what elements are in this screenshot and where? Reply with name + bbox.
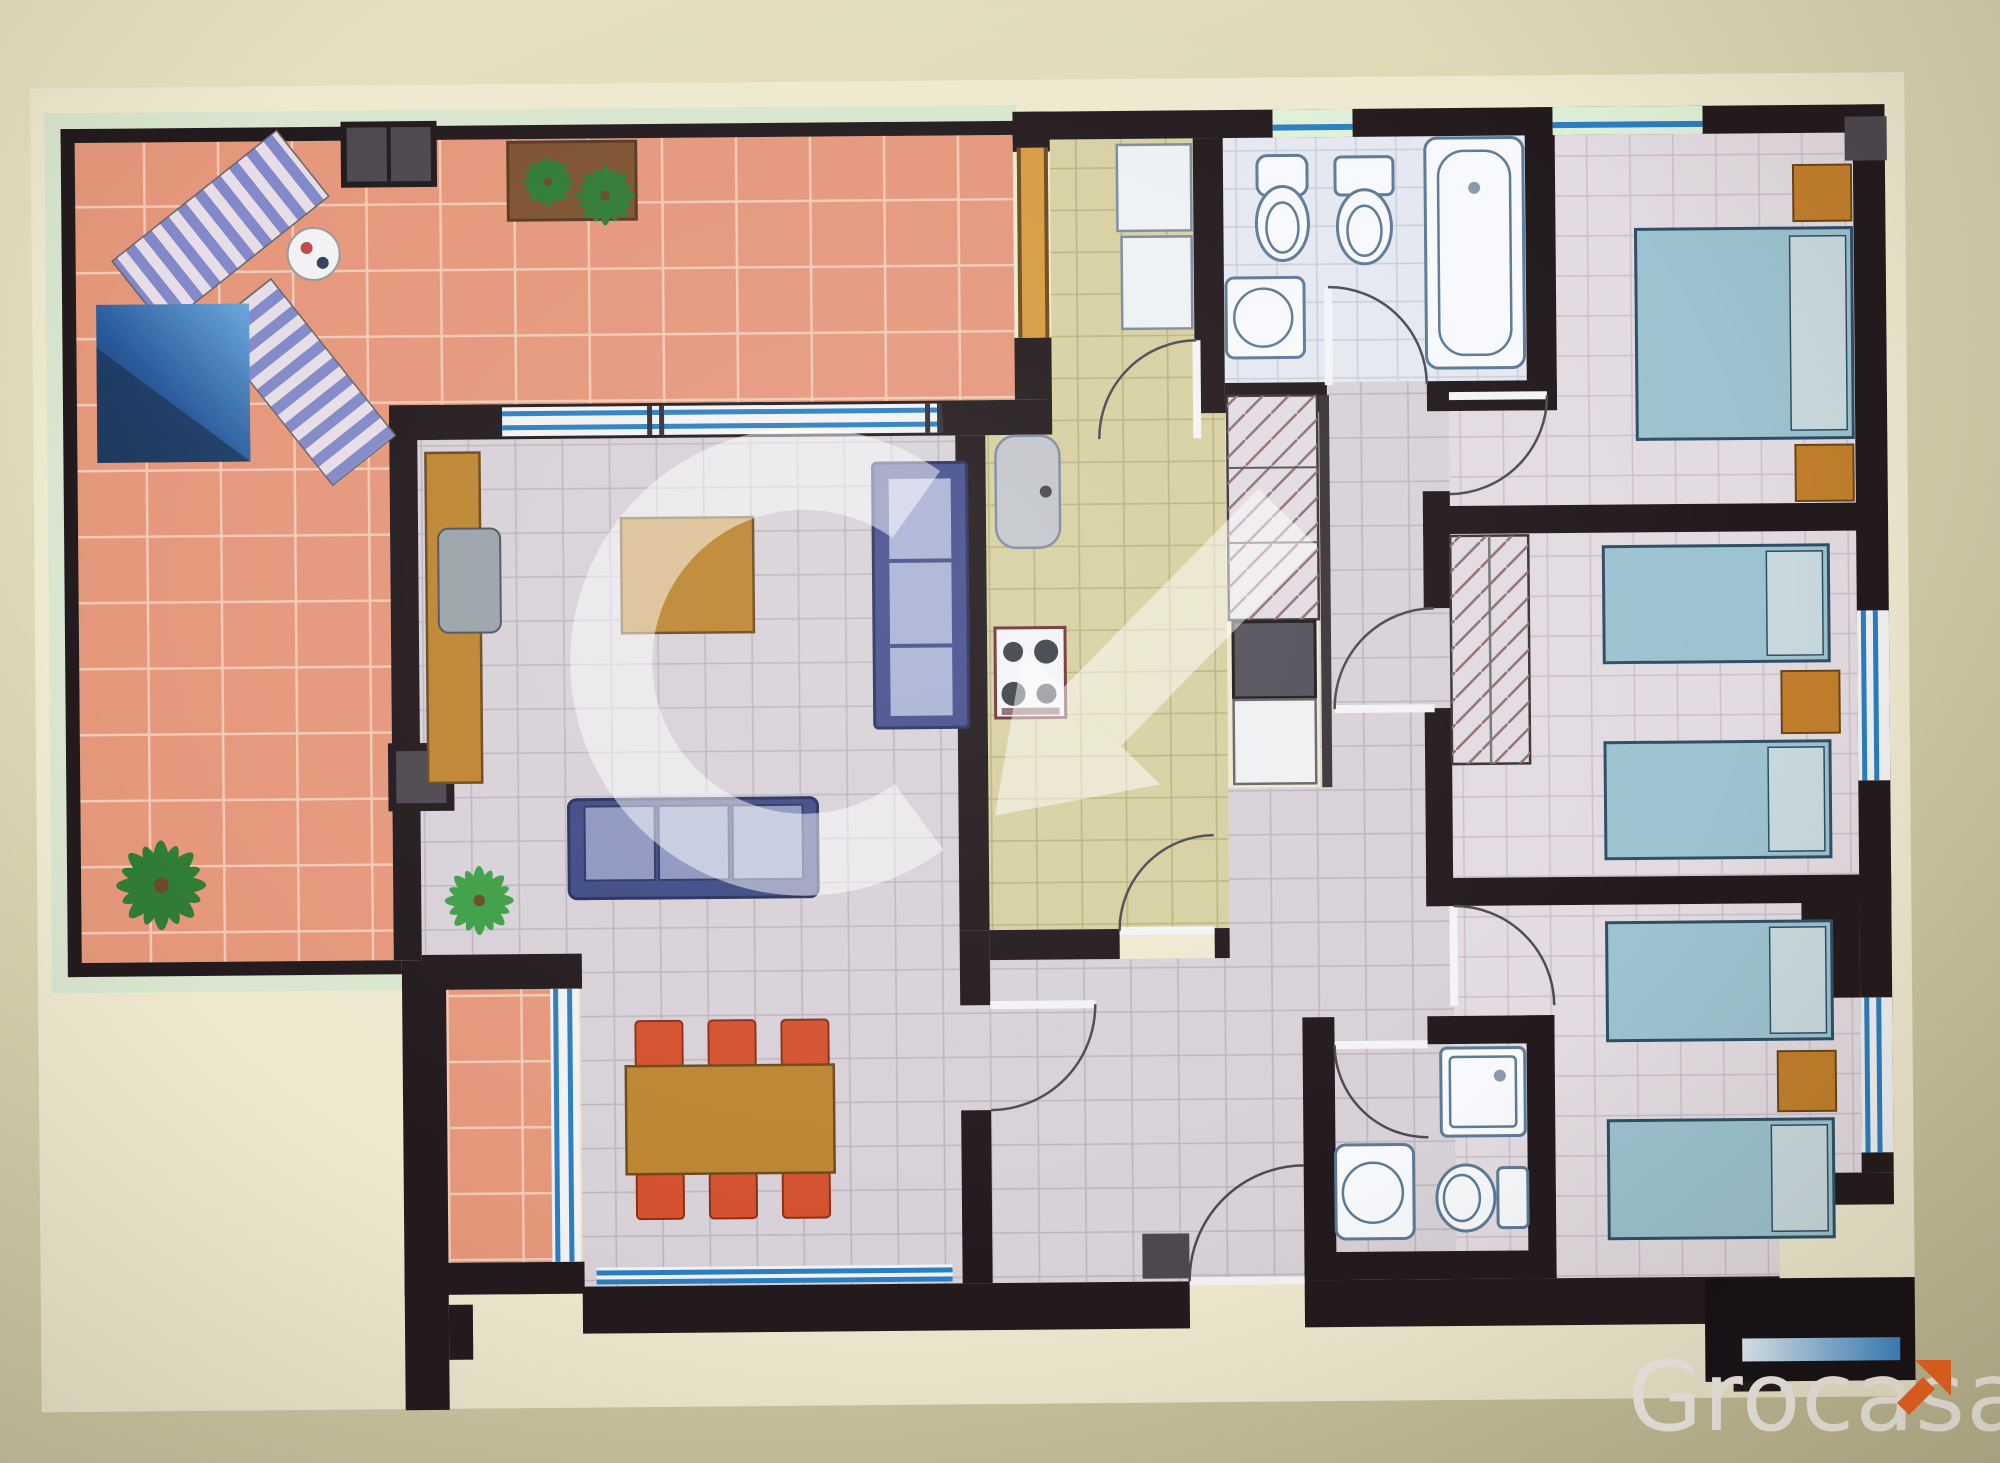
fridge (1117, 144, 1192, 231)
toilet (1335, 157, 1394, 265)
washing-machine (1233, 621, 1316, 698)
single-bed (1605, 741, 1831, 859)
bedroom1-window (1552, 106, 1702, 135)
entry-cabinet (1142, 1233, 1189, 1278)
dining-chair (635, 1021, 682, 1067)
wardrobe (1450, 535, 1530, 764)
bathroom1-window (1272, 109, 1352, 138)
dining-chair (708, 1020, 755, 1066)
wall-segment (1215, 928, 1230, 958)
wall-segment (1014, 338, 1052, 400)
bidet (1256, 155, 1309, 260)
pillar (347, 127, 387, 181)
wall-segment (404, 1262, 584, 1296)
brand-logo-text: Grocasa (1628, 1341, 2000, 1453)
palm-plant (116, 840, 207, 931)
wall-segment (1524, 107, 1557, 410)
wall-segment (389, 405, 422, 960)
floor-plan-photo: Grocasa (0, 0, 2000, 1463)
worktop (1122, 236, 1193, 329)
living-room-window (502, 403, 942, 436)
dining-chair (637, 1173, 684, 1219)
dining-table (626, 1064, 835, 1174)
dining-chair (783, 1172, 830, 1218)
wall-segment (1425, 708, 1454, 906)
round-side-table (287, 228, 339, 280)
dining-glazing (597, 1264, 953, 1284)
double-bed (1635, 228, 1853, 440)
wall-segment (583, 1281, 1190, 1333)
plant-icon (575, 165, 636, 226)
nightstand (1781, 671, 1840, 734)
railing-wall (68, 960, 402, 977)
wall-segment (402, 960, 450, 1410)
nightstand (1795, 445, 1853, 502)
wall-segment (960, 930, 991, 1005)
washbasin (1335, 1144, 1414, 1239)
wall-segment (961, 1110, 993, 1283)
bedroom3-window (1860, 997, 1893, 1152)
kitchen-sink (995, 435, 1060, 548)
appliance (1234, 699, 1317, 784)
wall-segment (1302, 1017, 1336, 1280)
floor-plant (444, 866, 514, 936)
wall-segment (1304, 1250, 1556, 1280)
pillar (391, 127, 431, 181)
bathtub (1425, 137, 1525, 368)
planter (508, 141, 637, 226)
plant-icon (522, 156, 573, 207)
bedroom2-window (1857, 610, 1890, 780)
pool-mat (96, 304, 250, 463)
nightstand (1793, 165, 1851, 222)
lower-terrace-glазing (550, 989, 580, 1262)
single-bed (1608, 1119, 1834, 1239)
wall-segment (1423, 502, 1888, 534)
brand-logo: Grocasa (1628, 1341, 2000, 1453)
nightstand (1778, 1051, 1837, 1112)
washbasin (1226, 277, 1305, 358)
floor-plan-drawing: Grocasa (0, 0, 2000, 1463)
dining-set (625, 1019, 835, 1219)
wall-segment (1012, 112, 1049, 152)
single-bed (1603, 545, 1829, 663)
tv (438, 528, 501, 633)
dining-chair (710, 1172, 757, 1218)
single-bed (1607, 921, 1833, 1041)
shower (1441, 1047, 1526, 1136)
wall-segment (1526, 1015, 1556, 1278)
wall-segment (422, 954, 582, 990)
dining-chair (781, 1020, 828, 1066)
pillar (1845, 116, 1887, 160)
wall-segment (990, 929, 1120, 960)
toilet (1437, 1164, 1529, 1231)
wall-segment (449, 1305, 473, 1360)
terrace-kitchen-door (1017, 148, 1050, 338)
